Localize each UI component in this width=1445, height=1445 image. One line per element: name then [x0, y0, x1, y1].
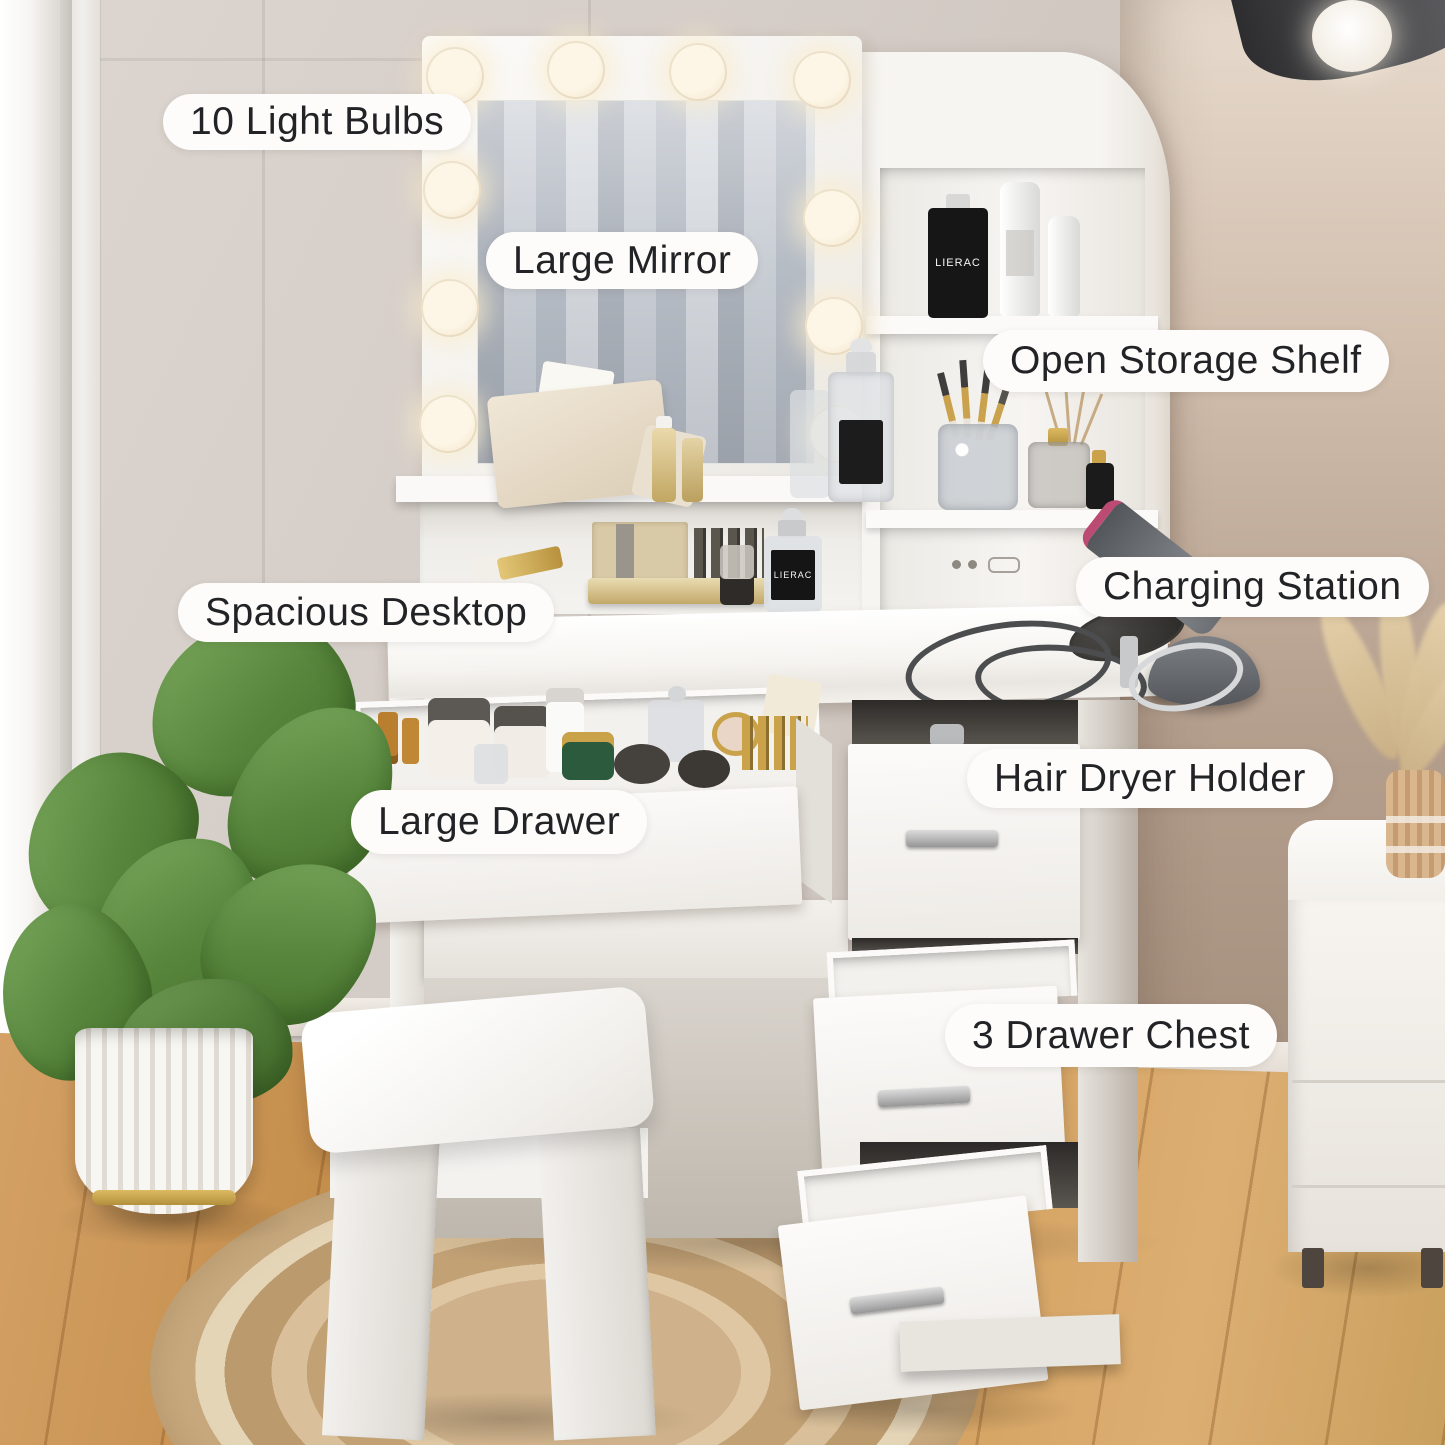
- callout-large-mirror: Large Mirror: [486, 232, 758, 289]
- power-socket-dot: [952, 560, 961, 569]
- light-bulb: [547, 41, 605, 99]
- amber-bottle: [402, 718, 419, 764]
- perfume-bottle-lierac-shelf: LIERAC: [928, 208, 988, 318]
- nightstand-foot: [1421, 1248, 1443, 1288]
- callout-label: Large Drawer: [378, 800, 620, 844]
- power-socket-dot: [968, 560, 977, 569]
- cabinet-plinth: [899, 1314, 1121, 1372]
- perfume-brand-text: LIERAC: [774, 570, 813, 580]
- light-bulb: [793, 51, 851, 109]
- palette-band: [616, 524, 634, 580]
- vase-band: [1386, 816, 1445, 823]
- callout-label: 10 Light Bulbs: [190, 100, 444, 144]
- callout-drawer-chest: 3 Drawer Chest: [945, 1004, 1277, 1067]
- perfume-label: LIERAC: [771, 550, 815, 600]
- callout-label: Spacious Desktop: [205, 591, 527, 635]
- light-bulb: [669, 43, 727, 101]
- callout-label: Hair Dryer Holder: [994, 757, 1306, 801]
- nightstand-foot: [1302, 1248, 1324, 1288]
- nightstand-drawer-seam: [1292, 1185, 1445, 1188]
- callout-charging-station: Charging Station: [1076, 557, 1429, 617]
- cosmetic-bottle: [1048, 216, 1080, 316]
- callout-spacious-desktop: Spacious Desktop: [178, 583, 554, 642]
- jar-lid: [614, 744, 670, 784]
- pendant-lamp-bulb: [1312, 0, 1392, 72]
- callout-label: Open Storage Shelf: [1010, 339, 1362, 383]
- callout-light-bulbs: 10 Light Bulbs: [163, 94, 471, 150]
- callout-label: 3 Drawer Chest: [972, 1014, 1250, 1058]
- callout-large-drawer: Large Drawer: [351, 790, 647, 854]
- stool-leg: [322, 1128, 440, 1441]
- wall-panel-seam: [95, 58, 425, 61]
- drawer-gap: [852, 700, 1078, 746]
- glass-jar: [474, 744, 508, 784]
- gold-bottle: [652, 428, 676, 502]
- light-bulb: [419, 395, 477, 453]
- palette-stack: [592, 522, 688, 582]
- perfume-stopper: [668, 686, 686, 702]
- callout-label: Large Mirror: [513, 239, 731, 283]
- pampas-vase: [1386, 770, 1445, 878]
- callout-hair-dryer-holder: Hair Dryer Holder: [967, 749, 1333, 808]
- callout-open-storage-shelf: Open Storage Shelf: [983, 330, 1389, 392]
- green-jar: [562, 732, 614, 780]
- nightstand: [1288, 900, 1445, 1252]
- stool-leg: [538, 1128, 656, 1441]
- perfume-label-dark: [839, 420, 883, 484]
- large-drawer-side: [796, 718, 832, 904]
- perfume-brand-text: LIERAC: [935, 257, 981, 269]
- plant-pot: [75, 1028, 253, 1214]
- light-bulb: [423, 161, 481, 219]
- glass-bottle: [790, 390, 830, 498]
- bottle-label: [1006, 230, 1034, 276]
- plant-pot-gold-band: [92, 1190, 236, 1205]
- callout-label: Charging Station: [1103, 565, 1402, 609]
- power-outlet: [988, 557, 1020, 573]
- stool-cushion: [300, 985, 656, 1155]
- glass-jar-dark: [720, 545, 754, 605]
- nightstand-drawer-seam: [1292, 1080, 1445, 1083]
- jar-cap-in-gap: [930, 724, 964, 744]
- light-bulb: [803, 189, 861, 247]
- reed-diffuser-bottle: [1028, 442, 1090, 508]
- room-scene: LIERAC LIERAC: [0, 0, 1445, 1445]
- light-bulb: [421, 279, 479, 337]
- vase-band: [1386, 846, 1445, 853]
- jar-lid: [678, 750, 730, 788]
- gold-bottle: [682, 438, 703, 502]
- drawer-handle: [906, 830, 998, 847]
- brush-holder-cup: [938, 424, 1018, 510]
